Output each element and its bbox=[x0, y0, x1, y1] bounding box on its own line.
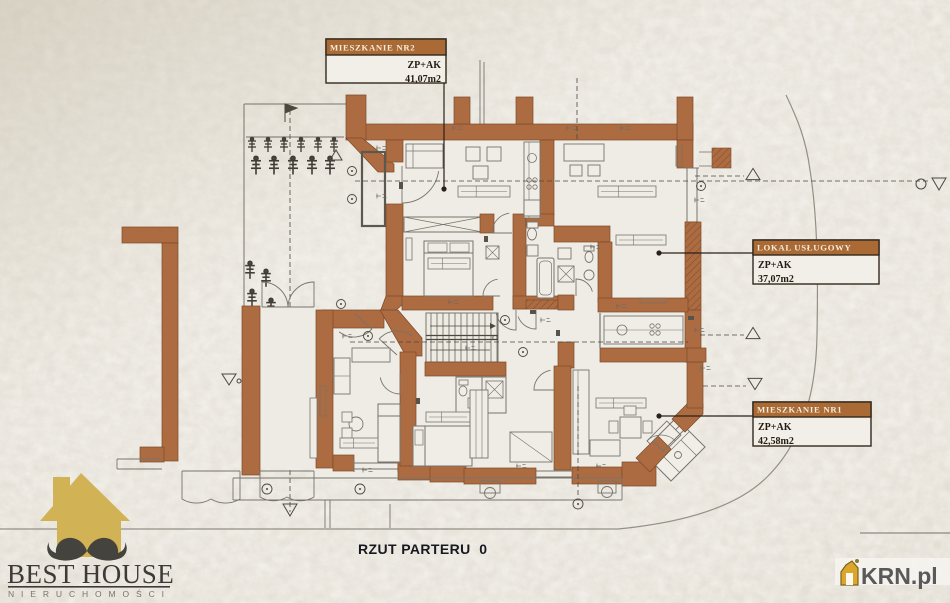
svg-text:ZP+AK: ZP+AK bbox=[408, 60, 442, 71]
svg-text:RZUT PARTERU 0: RZUT PARTERU 0 bbox=[358, 541, 487, 557]
svg-text:BEST HOUSE: BEST HOUSE bbox=[7, 559, 174, 589]
svg-text:ZP+AK: ZP+AK bbox=[758, 422, 792, 433]
svg-text:MIESZKANIE NR1: MIESZKANIE NR1 bbox=[757, 405, 842, 415]
svg-text:KRN.pl: KRN.pl bbox=[861, 563, 938, 589]
svg-text:ZP+AK: ZP+AK bbox=[758, 260, 792, 271]
svg-text:LOKAL USŁUGOWY: LOKAL USŁUGOWY bbox=[757, 243, 852, 253]
svg-text:MIESZKANIE NR2: MIESZKANIE NR2 bbox=[330, 43, 415, 53]
svg-text:42,58m2: 42,58m2 bbox=[758, 436, 794, 447]
svg-text:41,07m2: 41,07m2 bbox=[405, 74, 441, 85]
svg-text:NIERUCHOMOŚCI: NIERUCHOMOŚCI bbox=[8, 588, 171, 599]
svg-text:37,07m2: 37,07m2 bbox=[758, 274, 794, 285]
